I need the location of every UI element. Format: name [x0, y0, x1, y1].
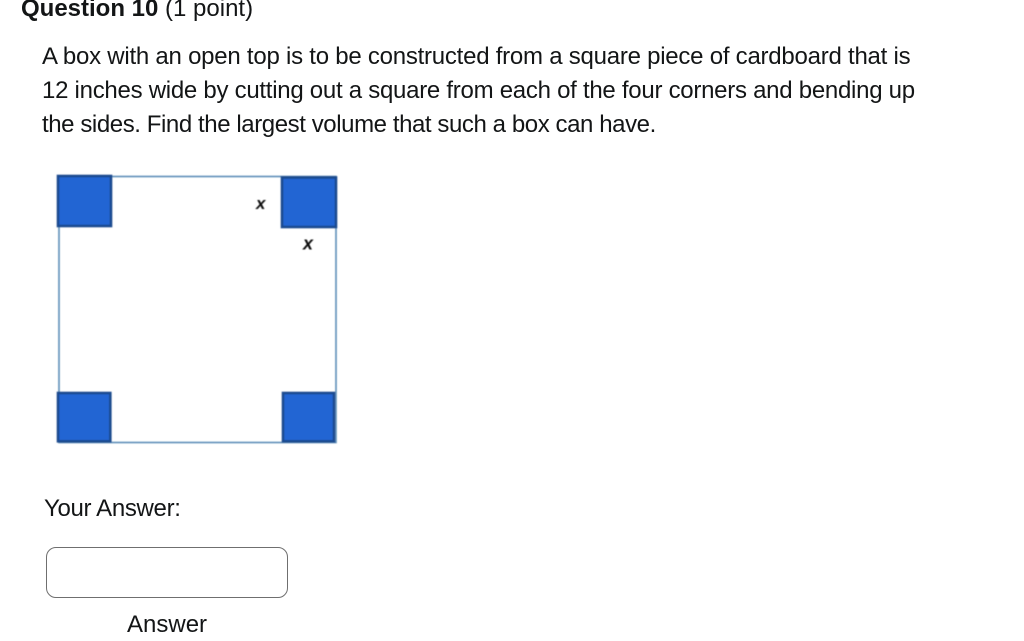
- svg-text:x: x: [302, 234, 314, 254]
- svg-text:x: x: [255, 194, 267, 213]
